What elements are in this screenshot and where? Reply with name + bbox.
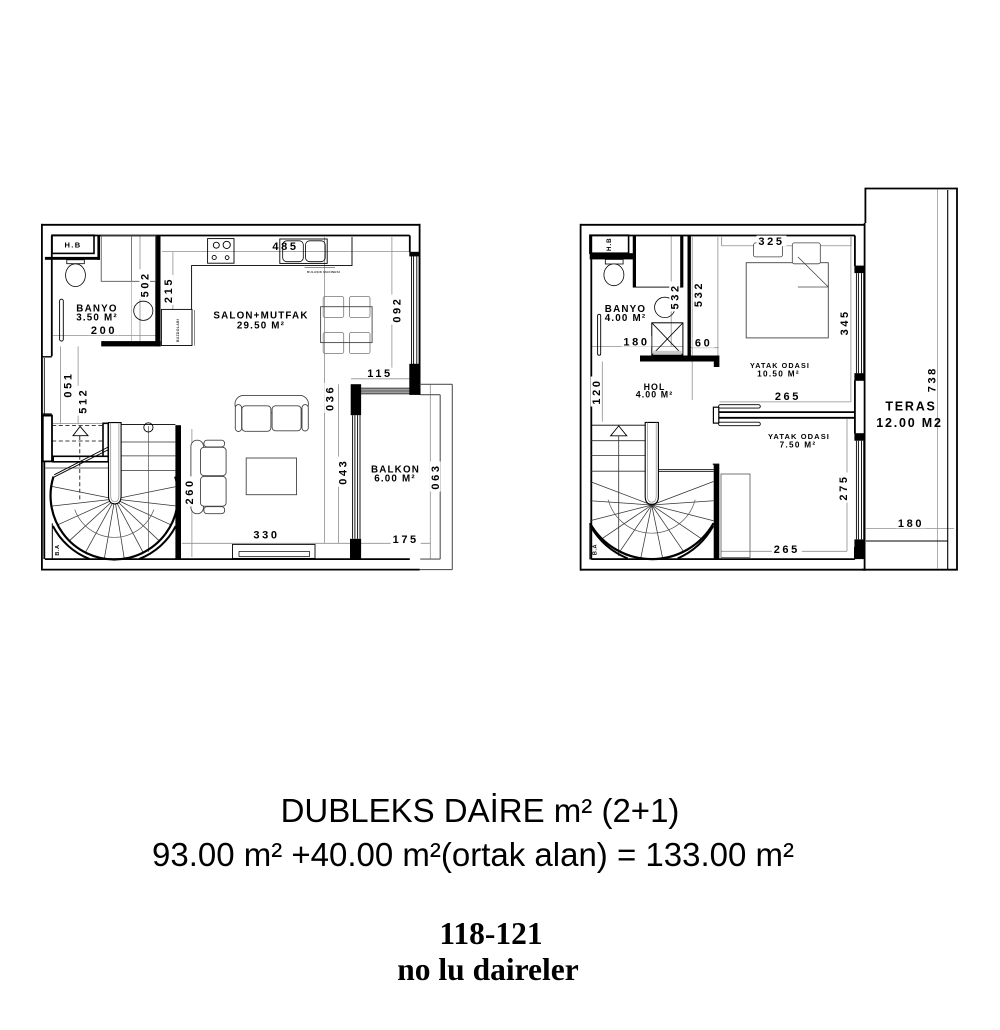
svg-text:043: 043 [338,459,350,485]
svg-text:532: 532 [693,281,705,307]
svg-text:29.50 M²: 29.50 M² [237,320,285,331]
svg-text:260: 260 [184,478,196,504]
svg-text:345: 345 [839,309,851,335]
svg-text:B.A: B.A [55,544,61,555]
svg-text:200: 200 [91,325,117,337]
svg-text:175: 175 [393,534,419,546]
svg-text:512: 512 [78,388,90,414]
svg-text:BUZDOLABI: BUZDOLABI [176,319,180,342]
svg-text:4.00 M²: 4.00 M² [636,390,674,400]
svg-text:B.A: B.A [592,544,598,555]
svg-text:325: 325 [758,236,784,248]
svg-text:532: 532 [670,283,682,309]
svg-text:330: 330 [253,530,279,542]
svg-text:265: 265 [775,391,801,403]
svg-text:10.50 M²: 10.50 M² [757,370,800,379]
svg-text:6.00 M²: 6.00 M² [374,473,416,484]
svg-text:275: 275 [838,474,850,500]
svg-text:180: 180 [623,337,649,349]
svg-text:115: 115 [367,368,393,380]
svg-text:265: 265 [774,544,800,556]
svg-text:DUBLEKS DAİRE m² (2+1): DUBLEKS DAİRE m² (2+1) [281,792,680,829]
svg-text:092: 092 [391,297,403,323]
svg-text:93.00 m² +40.00 m²(ortak alan): 93.00 m² +40.00 m²(ortak alan) = 133.00 … [152,836,794,873]
svg-text:3.50 M²: 3.50 M² [76,313,118,324]
svg-text:738: 738 [927,366,939,392]
svg-text:4.00 M²: 4.00 M² [605,313,647,324]
svg-text:H.B: H.B [606,237,613,251]
svg-text:502: 502 [140,271,152,297]
svg-text:036: 036 [325,385,337,411]
svg-text:YATAK ODASI: YATAK ODASI [750,361,810,370]
svg-text:no lu daireler: no lu daireler [397,952,578,987]
svg-text:BULAŞIK MAKİNESİ: BULAŞIK MAKİNESİ [307,270,340,274]
svg-text:180: 180 [898,518,924,530]
svg-text:120: 120 [591,378,603,404]
svg-text:215: 215 [163,277,175,303]
svg-text:485: 485 [272,241,298,253]
svg-text:118-121: 118-121 [439,916,542,951]
svg-text:051: 051 [62,371,74,397]
svg-text:063: 063 [430,463,442,489]
svg-text:60: 60 [695,338,712,350]
svg-text:H.B: H.B [64,241,81,250]
svg-text:TERAS: TERAS [885,400,936,414]
svg-text:12.00 M2: 12.00 M2 [876,416,943,430]
svg-text:7.50 M²: 7.50 M² [780,441,817,450]
